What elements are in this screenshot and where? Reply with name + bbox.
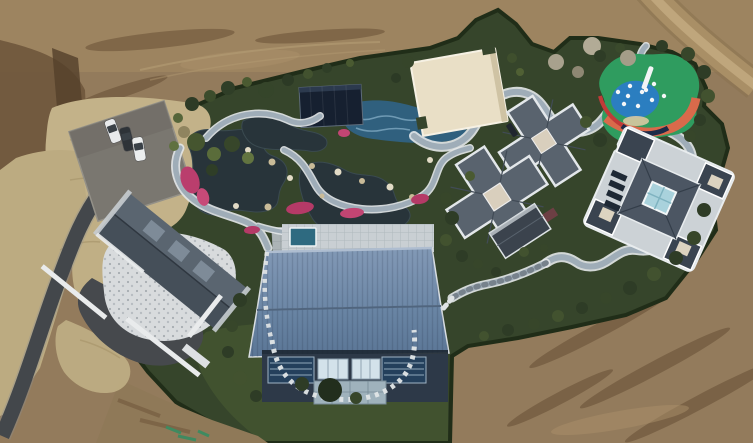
pond-rock (359, 178, 365, 184)
tree (224, 136, 240, 152)
tree (507, 53, 517, 63)
pond-rock (287, 175, 293, 181)
tree (701, 89, 715, 103)
tree (173, 113, 183, 123)
tree (233, 371, 247, 385)
playground (599, 54, 699, 144)
tree (615, 43, 625, 53)
play-equipment-dot (616, 90, 620, 94)
pond-rock (387, 184, 394, 191)
tree (204, 90, 216, 102)
tree (178, 126, 190, 138)
tree (282, 74, 294, 86)
tree (350, 392, 362, 404)
tree (207, 147, 221, 161)
tree (516, 68, 524, 76)
tree (491, 267, 501, 277)
azalea-flower-bed (338, 129, 350, 137)
playground-sand-patch (623, 116, 649, 126)
tree (465, 171, 475, 181)
tree (295, 377, 309, 391)
tree (169, 141, 179, 151)
tree (572, 66, 584, 78)
tree (528, 318, 540, 330)
tree (250, 390, 262, 402)
tree (445, 211, 459, 225)
tree (540, 244, 548, 252)
tree (620, 50, 636, 66)
tree (502, 324, 514, 336)
tree (440, 234, 452, 246)
tree (187, 133, 205, 151)
play-equipment-dot (644, 88, 648, 92)
tree (222, 346, 234, 358)
tree (656, 40, 668, 52)
tree (318, 378, 342, 402)
play-equipment-dot (628, 84, 632, 88)
tree (576, 302, 588, 314)
blue-roof-building (249, 224, 449, 404)
tree (647, 267, 661, 281)
tree (258, 82, 274, 98)
pond-rock (427, 157, 433, 163)
tree (580, 116, 592, 128)
pond-rock (320, 194, 325, 199)
tree (233, 293, 247, 307)
tree (684, 130, 696, 142)
tree (548, 54, 564, 70)
aerial-photo-stage (0, 0, 753, 443)
play-equipment-dot (626, 94, 630, 98)
aerial-photo (0, 0, 753, 443)
pond-rock (265, 204, 272, 211)
pond-rock (335, 169, 342, 176)
tree (669, 251, 683, 265)
tree (242, 77, 252, 87)
tree (303, 69, 313, 79)
tree (221, 81, 235, 95)
tree (600, 292, 612, 304)
pond-rock (269, 159, 276, 166)
tree (226, 320, 238, 332)
tree (687, 231, 701, 245)
tree (456, 250, 468, 262)
play-equipment-dot (640, 90, 644, 94)
tree (694, 114, 706, 126)
play-equipment-dot (622, 102, 626, 106)
tree (440, 192, 452, 204)
play-equipment-dot (652, 82, 656, 86)
pond-rock (233, 203, 239, 209)
tree (681, 47, 695, 61)
play-equipment-dot (662, 94, 666, 98)
tree (346, 59, 354, 67)
tree (322, 63, 332, 73)
louvered-window-right (382, 357, 426, 383)
rooftop-spa-pool (290, 228, 316, 246)
tree (697, 203, 711, 217)
tree (206, 164, 218, 176)
play-equipment-dot (636, 104, 640, 108)
tree (552, 310, 564, 322)
pond-rock (309, 163, 315, 169)
tree (242, 152, 254, 164)
tree (593, 133, 607, 147)
tree (519, 247, 529, 257)
tree (697, 65, 711, 79)
tree (479, 331, 489, 341)
tree (402, 56, 414, 68)
tree (623, 281, 637, 295)
tree (594, 50, 606, 62)
tree (185, 97, 199, 111)
play-equipment-dot (650, 98, 654, 102)
tree (391, 73, 401, 83)
tree (473, 259, 483, 269)
tree (607, 141, 617, 151)
